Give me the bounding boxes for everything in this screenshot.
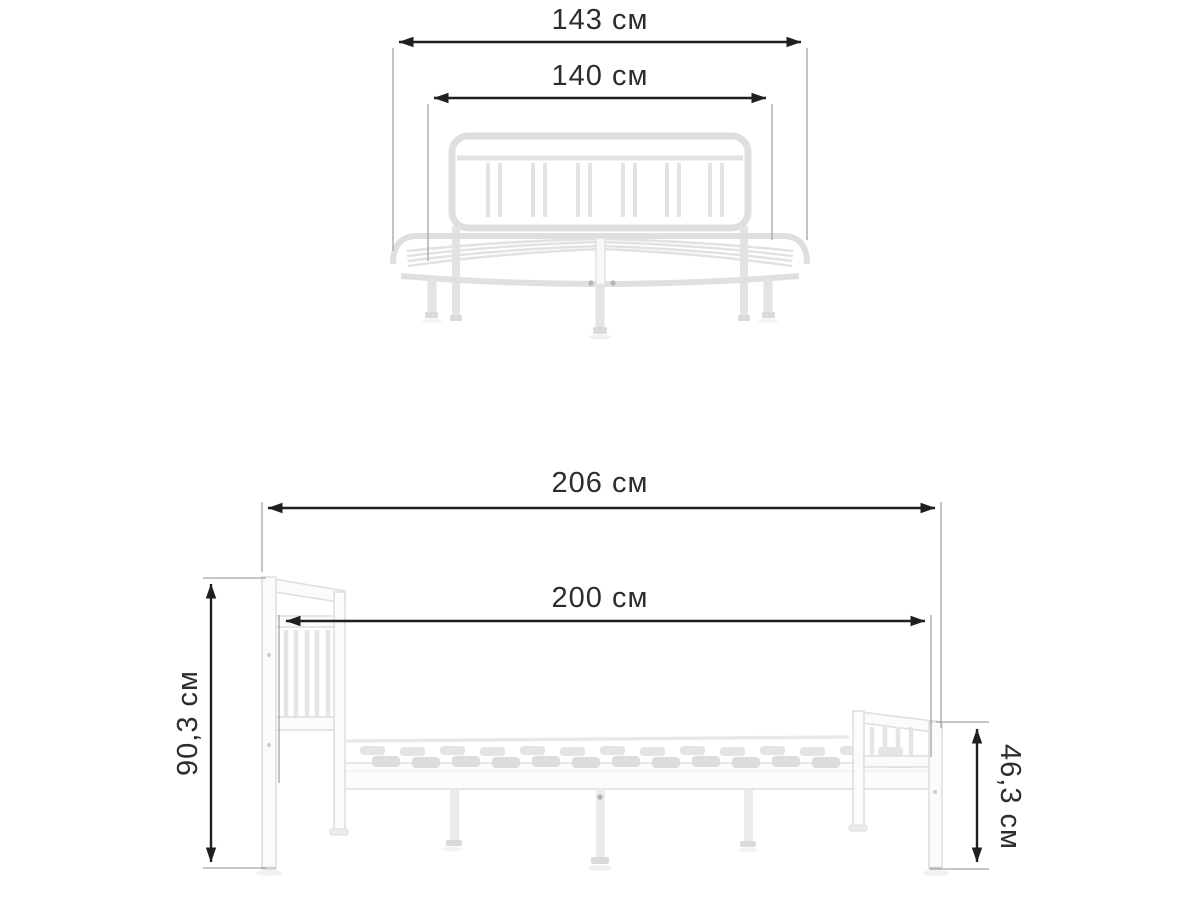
dim-label-mattress-length: 200 см [552,582,649,614]
dim-label-footboard-height: 46,3 см [994,744,1026,850]
bed-base-side [345,737,929,871]
bolt [597,794,602,799]
dim-label-overall-length: 206 см [552,467,649,499]
bolt [610,280,615,285]
dimension-headboard-height: 90,3 см [172,578,266,868]
front-view: 143 см 140 см [393,4,807,340]
front-legs [422,279,778,340]
side-view: 206 см 200 см 90,3 см 46,3 см [172,467,1026,876]
dimension-footboard-height: 46,3 см [930,722,1026,869]
headboard-front-slats [488,163,722,217]
dim-label-mattress-width: 140 см [552,60,649,92]
bed-dimensions-diagram: 143 см 140 см [0,0,1200,900]
bolt [588,280,593,285]
slats-side-far [360,746,903,756]
dim-label-headboard-height: 90,3 см [172,670,204,776]
bolt [267,653,271,657]
bolt [267,743,271,747]
side-legs [442,789,758,871]
dim-label-overall-width: 143 см [552,4,649,36]
headboard-side-slats [286,630,328,717]
footboard-side [849,711,949,876]
bolt [933,790,937,794]
center-support-front [596,238,605,285]
diagram-svg: 143 см 140 см [0,0,1200,900]
